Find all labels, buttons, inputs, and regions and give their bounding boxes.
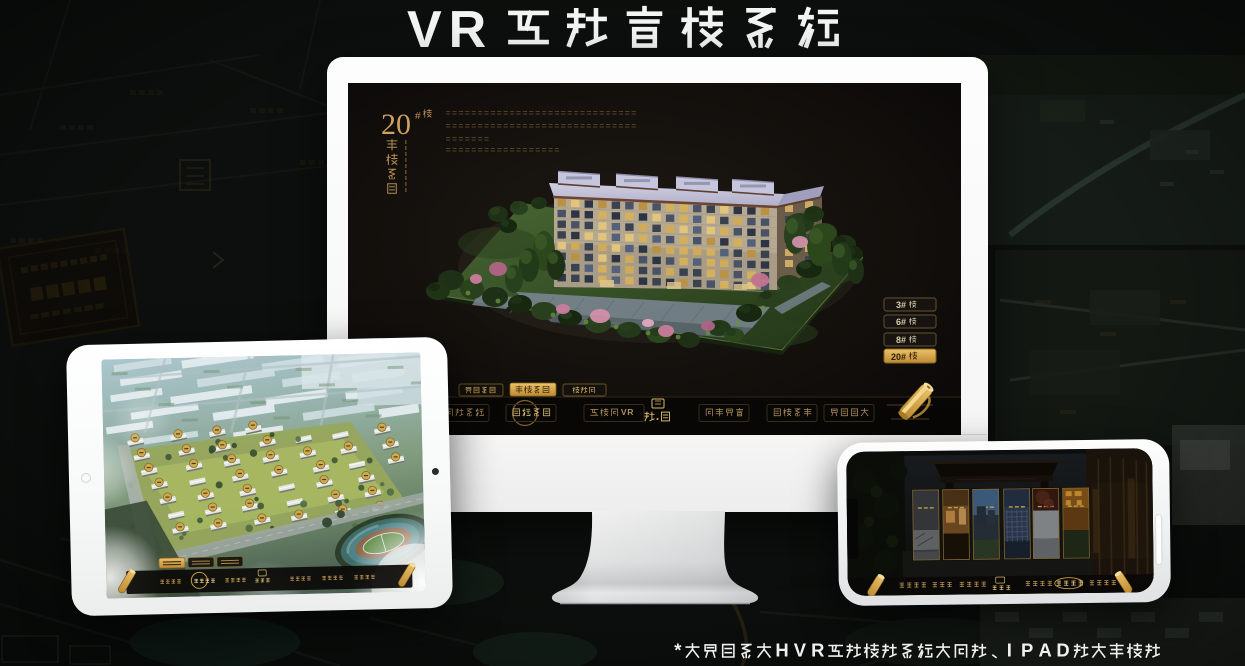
svg-text:VR: VR [407, 1, 493, 56]
svg-text:D: D [1056, 640, 1069, 661]
svg-text:V: V [621, 407, 627, 417]
svg-text:8#: 8# [896, 335, 906, 345]
svg-text:3#: 3# [896, 300, 906, 310]
svg-text:H: H [775, 640, 788, 661]
svg-text:20#: 20# [891, 352, 906, 362]
svg-text:P: P [1021, 640, 1033, 661]
svg-text:R: R [811, 640, 824, 661]
svg-text:20: 20 [381, 108, 411, 141]
svg-text:I: I [1007, 640, 1012, 661]
svg-text:*: * [674, 640, 682, 661]
svg-text:#: # [415, 111, 421, 122]
svg-text:A: A [1038, 640, 1051, 661]
svg-text:R: R [627, 407, 634, 417]
svg-text:V: V [794, 640, 807, 661]
svg-text:6#: 6# [896, 317, 906, 327]
